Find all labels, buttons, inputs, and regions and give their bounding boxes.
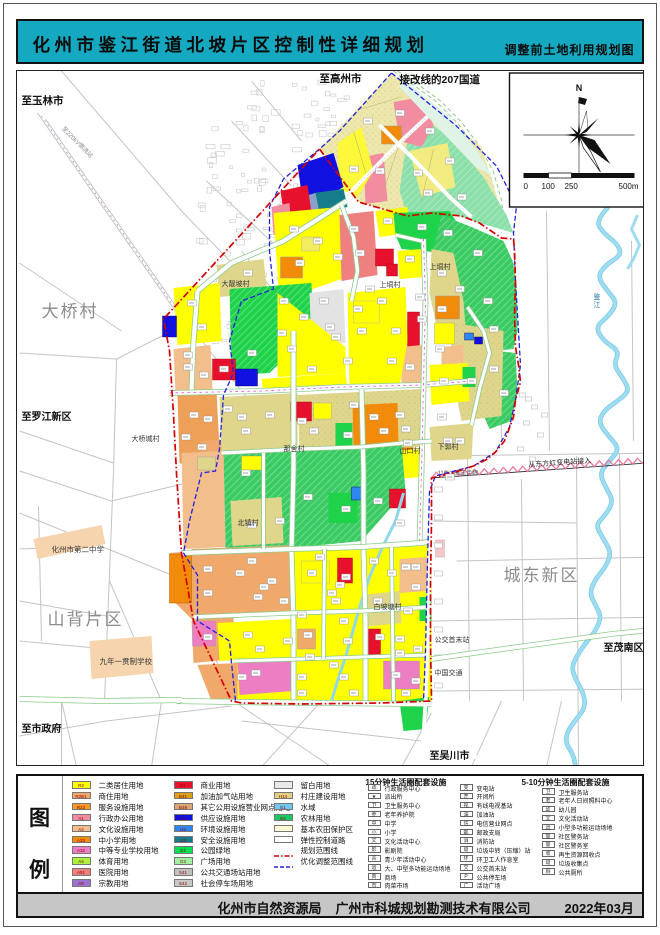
svg-text:山背片区: 山背片区: [47, 610, 123, 629]
svg-text:至吴川市: 至吴川市: [429, 749, 469, 762]
svg-text:N: N: [575, 83, 582, 93]
svg-text:500m: 500m: [618, 182, 638, 191]
svg-text:至玉林市: 至玉林市: [21, 94, 63, 107]
svg-text:山口村: 山口村: [399, 446, 420, 455]
svg-text:大桥城村: 大桥城村: [131, 434, 159, 443]
svg-text:鉴: 鉴: [593, 292, 600, 301]
svg-text:0: 0: [523, 182, 528, 191]
svg-text:100: 100: [541, 182, 555, 191]
svg-text:250: 250: [564, 182, 578, 191]
svg-text:化州市第二中学: 化州市第二中学: [51, 544, 104, 554]
svg-text:城东新区: 城东新区: [503, 566, 579, 585]
svg-text:至罗江新区: 至罗江新区: [21, 410, 71, 423]
svg-text:至市政府: 至市政府: [21, 722, 61, 735]
svg-text:中国交通: 中国交通: [434, 668, 462, 677]
svg-text:白坡塘村: 白坡塘村: [373, 602, 401, 611]
svg-text:那舍村: 那舍村: [283, 444, 304, 453]
svg-text:至220kV倒流站: 至220kV倒流站: [60, 125, 95, 160]
svg-text:接改线的207国道: 接改线的207国道: [399, 73, 480, 86]
svg-text:从东方红变电站接入: 从东方红变电站接入: [528, 456, 591, 469]
svg-text:大桥村: 大桥村: [41, 302, 98, 321]
svg-text:大靓坡村: 大靓坡村: [221, 279, 249, 288]
svg-text:上垌村: 上垌村: [429, 262, 450, 271]
svg-text:江: 江: [593, 301, 600, 309]
svg-text:公交首末站: 公交首末站: [434, 635, 469, 644]
svg-text:下郭村: 下郭村: [437, 442, 458, 451]
svg-text:九年一贯制学校: 九年一贯制学校: [99, 656, 152, 666]
svg-text:至茂南区: 至茂南区: [603, 641, 643, 654]
svg-text:至高州市: 至高州市: [319, 72, 361, 85]
svg-text:北镇村: 北镇村: [237, 518, 258, 527]
svg-text:上垌村: 上垌村: [379, 280, 400, 289]
